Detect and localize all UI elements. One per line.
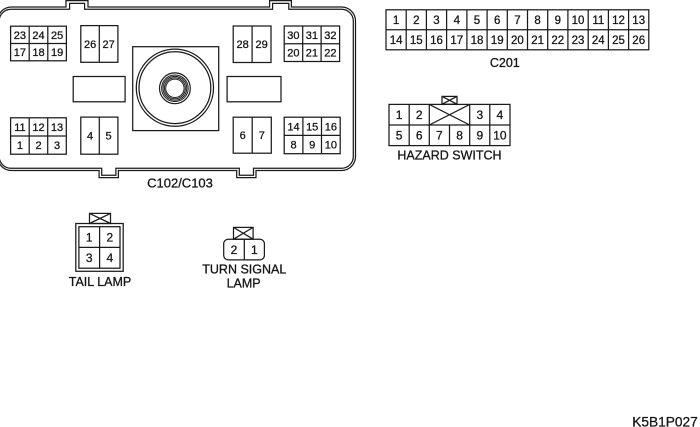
svg-text:23: 23 — [572, 35, 585, 47]
svg-text:7: 7 — [436, 129, 443, 143]
svg-text:5: 5 — [474, 15, 480, 27]
svg-text:TAIL LAMP: TAIL LAMP — [69, 275, 132, 289]
svg-text:TURN SIGNAL: TURN SIGNAL — [202, 263, 286, 277]
svg-text:19: 19 — [51, 47, 63, 59]
svg-text:10: 10 — [572, 15, 585, 27]
svg-text:2: 2 — [106, 230, 113, 244]
svg-text:8: 8 — [534, 15, 540, 27]
svg-text:19: 19 — [491, 35, 504, 47]
svg-text:11: 11 — [14, 122, 25, 134]
svg-text:25: 25 — [612, 35, 625, 47]
svg-text:14: 14 — [390, 35, 403, 47]
svg-text:1: 1 — [251, 243, 258, 257]
svg-text:3: 3 — [54, 140, 60, 152]
svg-text:26: 26 — [84, 39, 96, 51]
svg-text:26: 26 — [632, 35, 645, 47]
svg-text:30: 30 — [287, 30, 299, 42]
svg-text:2: 2 — [413, 15, 419, 27]
svg-text:11: 11 — [592, 15, 604, 27]
svg-text:C201: C201 — [490, 56, 520, 70]
svg-text:18: 18 — [32, 47, 44, 59]
svg-text:5: 5 — [106, 131, 112, 143]
svg-text:20: 20 — [511, 35, 524, 47]
svg-text:29: 29 — [255, 39, 267, 51]
svg-text:7: 7 — [514, 15, 520, 27]
svg-text:13: 13 — [51, 122, 63, 134]
svg-text:2: 2 — [231, 243, 238, 257]
svg-text:20: 20 — [287, 48, 299, 60]
svg-text:1: 1 — [393, 15, 399, 27]
svg-text:31: 31 — [306, 30, 318, 42]
svg-text:18: 18 — [471, 35, 484, 47]
svg-text:9: 9 — [309, 140, 315, 152]
svg-text:14: 14 — [287, 121, 299, 133]
svg-text:10: 10 — [493, 129, 507, 143]
svg-text:12: 12 — [612, 15, 625, 27]
svg-text:6: 6 — [494, 15, 500, 27]
svg-text:21: 21 — [306, 48, 318, 60]
svg-text:3: 3 — [433, 15, 439, 27]
svg-text:1: 1 — [396, 108, 403, 122]
svg-text:LAMP: LAMP — [227, 277, 261, 291]
svg-text:K5B1P027: K5B1P027 — [632, 415, 697, 427]
svg-text:15: 15 — [410, 35, 423, 47]
svg-text:32: 32 — [324, 30, 336, 42]
svg-text:9: 9 — [476, 129, 483, 143]
svg-text:24: 24 — [32, 30, 44, 42]
svg-text:28: 28 — [236, 39, 248, 51]
svg-text:17: 17 — [450, 35, 463, 47]
svg-text:C102/C103: C102/C103 — [147, 175, 213, 190]
svg-text:8: 8 — [290, 140, 296, 152]
svg-text:6: 6 — [416, 129, 423, 143]
svg-text:13: 13 — [632, 15, 645, 27]
svg-text:7: 7 — [259, 130, 265, 142]
svg-text:9: 9 — [555, 15, 561, 27]
svg-text:27: 27 — [102, 39, 114, 51]
svg-text:3: 3 — [476, 108, 483, 122]
svg-text:15: 15 — [306, 121, 318, 133]
svg-text:1: 1 — [17, 140, 23, 152]
svg-text:17: 17 — [14, 47, 26, 59]
svg-text:HAZARD SWITCH: HAZARD SWITCH — [397, 149, 501, 163]
svg-text:22: 22 — [551, 35, 564, 47]
svg-text:10: 10 — [325, 140, 337, 152]
svg-text:3: 3 — [86, 251, 93, 265]
svg-text:4: 4 — [87, 131, 93, 143]
svg-text:1: 1 — [86, 230, 93, 244]
svg-text:12: 12 — [32, 122, 44, 134]
svg-text:16: 16 — [430, 35, 443, 47]
svg-text:2: 2 — [416, 108, 423, 122]
svg-text:16: 16 — [325, 121, 337, 133]
svg-text:22: 22 — [324, 48, 336, 60]
svg-text:24: 24 — [592, 35, 605, 47]
svg-text:6: 6 — [240, 130, 246, 142]
svg-text:4: 4 — [106, 251, 113, 265]
svg-text:5: 5 — [396, 129, 403, 143]
svg-text:4: 4 — [454, 15, 461, 27]
svg-text:21: 21 — [531, 35, 544, 47]
svg-text:4: 4 — [497, 108, 504, 122]
svg-text:2: 2 — [35, 140, 41, 152]
svg-text:25: 25 — [51, 30, 63, 42]
svg-text:8: 8 — [456, 129, 463, 143]
svg-text:23: 23 — [14, 30, 26, 42]
